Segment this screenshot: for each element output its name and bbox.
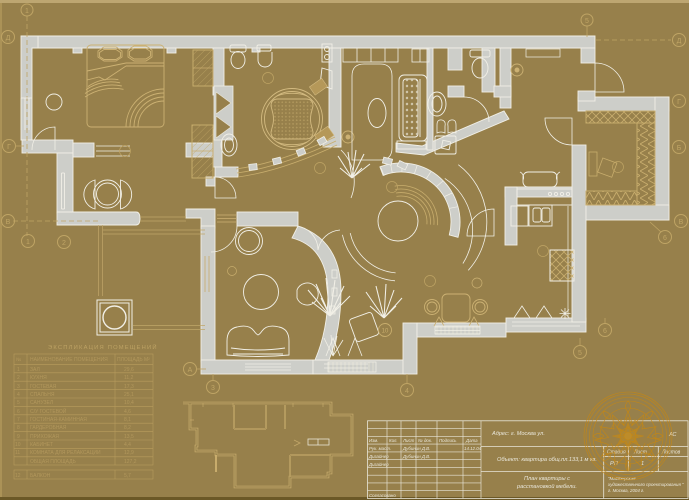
svg-text:ГАРДЕРОБНАЯ: ГАРДЕРОБНАЯ <box>30 425 67 431</box>
svg-text:4: 4 <box>17 392 20 398</box>
svg-text:ПЛОЩАДЬ М²: ПЛОЩАДЬ М² <box>117 357 150 363</box>
svg-text:4,6: 4,6 <box>124 409 131 415</box>
svg-text:2: 2 <box>17 375 20 381</box>
svg-text:Подпись: Подпись <box>439 438 457 443</box>
svg-text:КОМНАТА ДЛЯ РЕЛАКСАЦИИ: КОМНАТА ДЛЯ РЕЛАКСАЦИИ <box>30 450 101 456</box>
svg-text:№: № <box>16 357 21 363</box>
svg-text:Д: Д <box>6 35 11 42</box>
svg-text:художественного проектирования: художественного проектирования " <box>607 482 684 487</box>
svg-text:2: 2 <box>62 240 66 247</box>
svg-text:"Мастерская: "Мастерская <box>608 476 636 481</box>
svg-text:14.12.04: 14.12.04 <box>464 446 482 451</box>
svg-text:127,2: 127,2 <box>124 459 137 465</box>
svg-text:11: 11 <box>15 450 20 456</box>
svg-text:Адрес: г. Москва ул.: Адрес: г. Москва ул. <box>491 431 545 437</box>
svg-text:5: 5 <box>585 18 589 25</box>
svg-text:Рук. маст.: Рук. маст. <box>369 446 391 451</box>
svg-text:Д: Д <box>677 38 682 45</box>
svg-text:Лист: Лист <box>402 438 415 443</box>
svg-text:1: 1 <box>25 8 29 15</box>
svg-text:1: 1 <box>17 367 20 373</box>
svg-text:ОБЩАЯ ПЛОЩАДЬ: ОБЩАЯ ПЛОЩАДЬ <box>30 459 77 465</box>
svg-text:Кол.: Кол. <box>389 438 398 443</box>
svg-text:АС: АС <box>668 432 677 438</box>
svg-text:С/У ГОСТЕВОЙ: С/У ГОСТЕВОЙ <box>30 407 67 415</box>
svg-text:ЭКСПЛИКАЦИЯ ПОМЕЩЕНИЙ: ЭКСПЛИКАЦИЯ ПОМЕЩЕНИЙ <box>48 343 158 351</box>
svg-text:ЗАЛ: ЗАЛ <box>30 367 40 373</box>
svg-text:Г: Г <box>7 144 11 151</box>
svg-text:7: 7 <box>17 417 20 423</box>
svg-text:Дубинин Д.В.: Дубинин Д.В. <box>402 446 430 451</box>
svg-text:расстановкой мебели.: расстановкой мебели. <box>516 483 577 490</box>
svg-text:6: 6 <box>603 328 607 335</box>
svg-text:10: 10 <box>15 442 21 448</box>
svg-text:6: 6 <box>17 409 20 415</box>
svg-text:Дата: Дата <box>465 438 478 443</box>
svg-text:6: 6 <box>663 235 667 242</box>
svg-text:ГОСТИНАЯ-КАМИННАЯ: ГОСТИНАЯ-КАМИННАЯ <box>30 417 87 423</box>
svg-text:12: 12 <box>15 473 21 479</box>
svg-text:Объект: квартира общ.пл.133,1: Объект: квартира общ.пл.133,1 м кв. <box>497 457 597 463</box>
svg-text:КУХНЯ: КУХНЯ <box>30 375 47 381</box>
svg-text:Дубинин Д.В.: Дубинин Д.В. <box>402 454 430 459</box>
svg-text:Дизайнер: Дизайнер <box>368 454 389 459</box>
svg-text:ПРИХОЖАЯ: ПРИХОЖАЯ <box>30 434 59 440</box>
svg-text:1: 1 <box>26 239 30 246</box>
svg-text:План квартиры с: План квартиры с <box>524 476 570 482</box>
svg-text:Г: Г <box>677 99 681 106</box>
svg-text:29,6: 29,6 <box>124 367 134 373</box>
svg-text:5: 5 <box>17 400 20 406</box>
svg-text:10: 10 <box>382 329 389 335</box>
svg-text:4: 4 <box>405 388 409 395</box>
svg-text:9: 9 <box>17 434 20 440</box>
svg-text:Согласовано: Согласовано <box>369 493 396 498</box>
svg-text:САНУЗЕЛ: САНУЗЕЛ <box>30 400 53 406</box>
svg-text:17,3: 17,3 <box>124 384 134 390</box>
svg-text:8: 8 <box>17 425 20 431</box>
svg-text:В: В <box>6 219 11 226</box>
svg-text:4,4: 4,4 <box>124 442 131 448</box>
svg-text:ГОСТЕВАЯ: ГОСТЕВАЯ <box>30 384 57 390</box>
svg-text:Б: Б <box>677 145 682 152</box>
svg-text:№ док.: № док. <box>418 438 432 443</box>
svg-text:НАИМЕНОВАНИЕ ПОМЕЩЕНИЯ: НАИМЕНОВАНИЕ ПОМЕЩЕНИЯ <box>30 357 108 363</box>
svg-text:12,9: 12,9 <box>124 450 134 456</box>
svg-text:10,4: 10,4 <box>124 400 134 406</box>
svg-text:А: А <box>188 367 193 374</box>
svg-text:13,5: 13,5 <box>124 434 134 440</box>
svg-text:8,1: 8,1 <box>124 417 131 423</box>
svg-text:Изм.: Изм. <box>369 438 378 443</box>
svg-text:В: В <box>679 219 684 226</box>
svg-text:Дизайнер: Дизайнер <box>368 462 389 467</box>
svg-text:5: 5 <box>578 350 582 357</box>
svg-text:11,2: 11,2 <box>124 375 134 381</box>
svg-text:3: 3 <box>211 385 215 392</box>
svg-text:СПАЛЬНЯ: СПАЛЬНЯ <box>30 392 55 398</box>
svg-text:БАЛКОН: БАЛКОН <box>30 473 51 479</box>
svg-text:25,1: 25,1 <box>124 392 134 398</box>
svg-text:КАБИНЕТ: КАБИНЕТ <box>30 442 53 448</box>
svg-text:8,2: 8,2 <box>124 425 131 431</box>
svg-text:5,7: 5,7 <box>124 473 131 479</box>
svg-text:г. Москва, 2004 г.: г. Москва, 2004 г. <box>608 488 644 493</box>
svg-text:3: 3 <box>17 384 20 390</box>
